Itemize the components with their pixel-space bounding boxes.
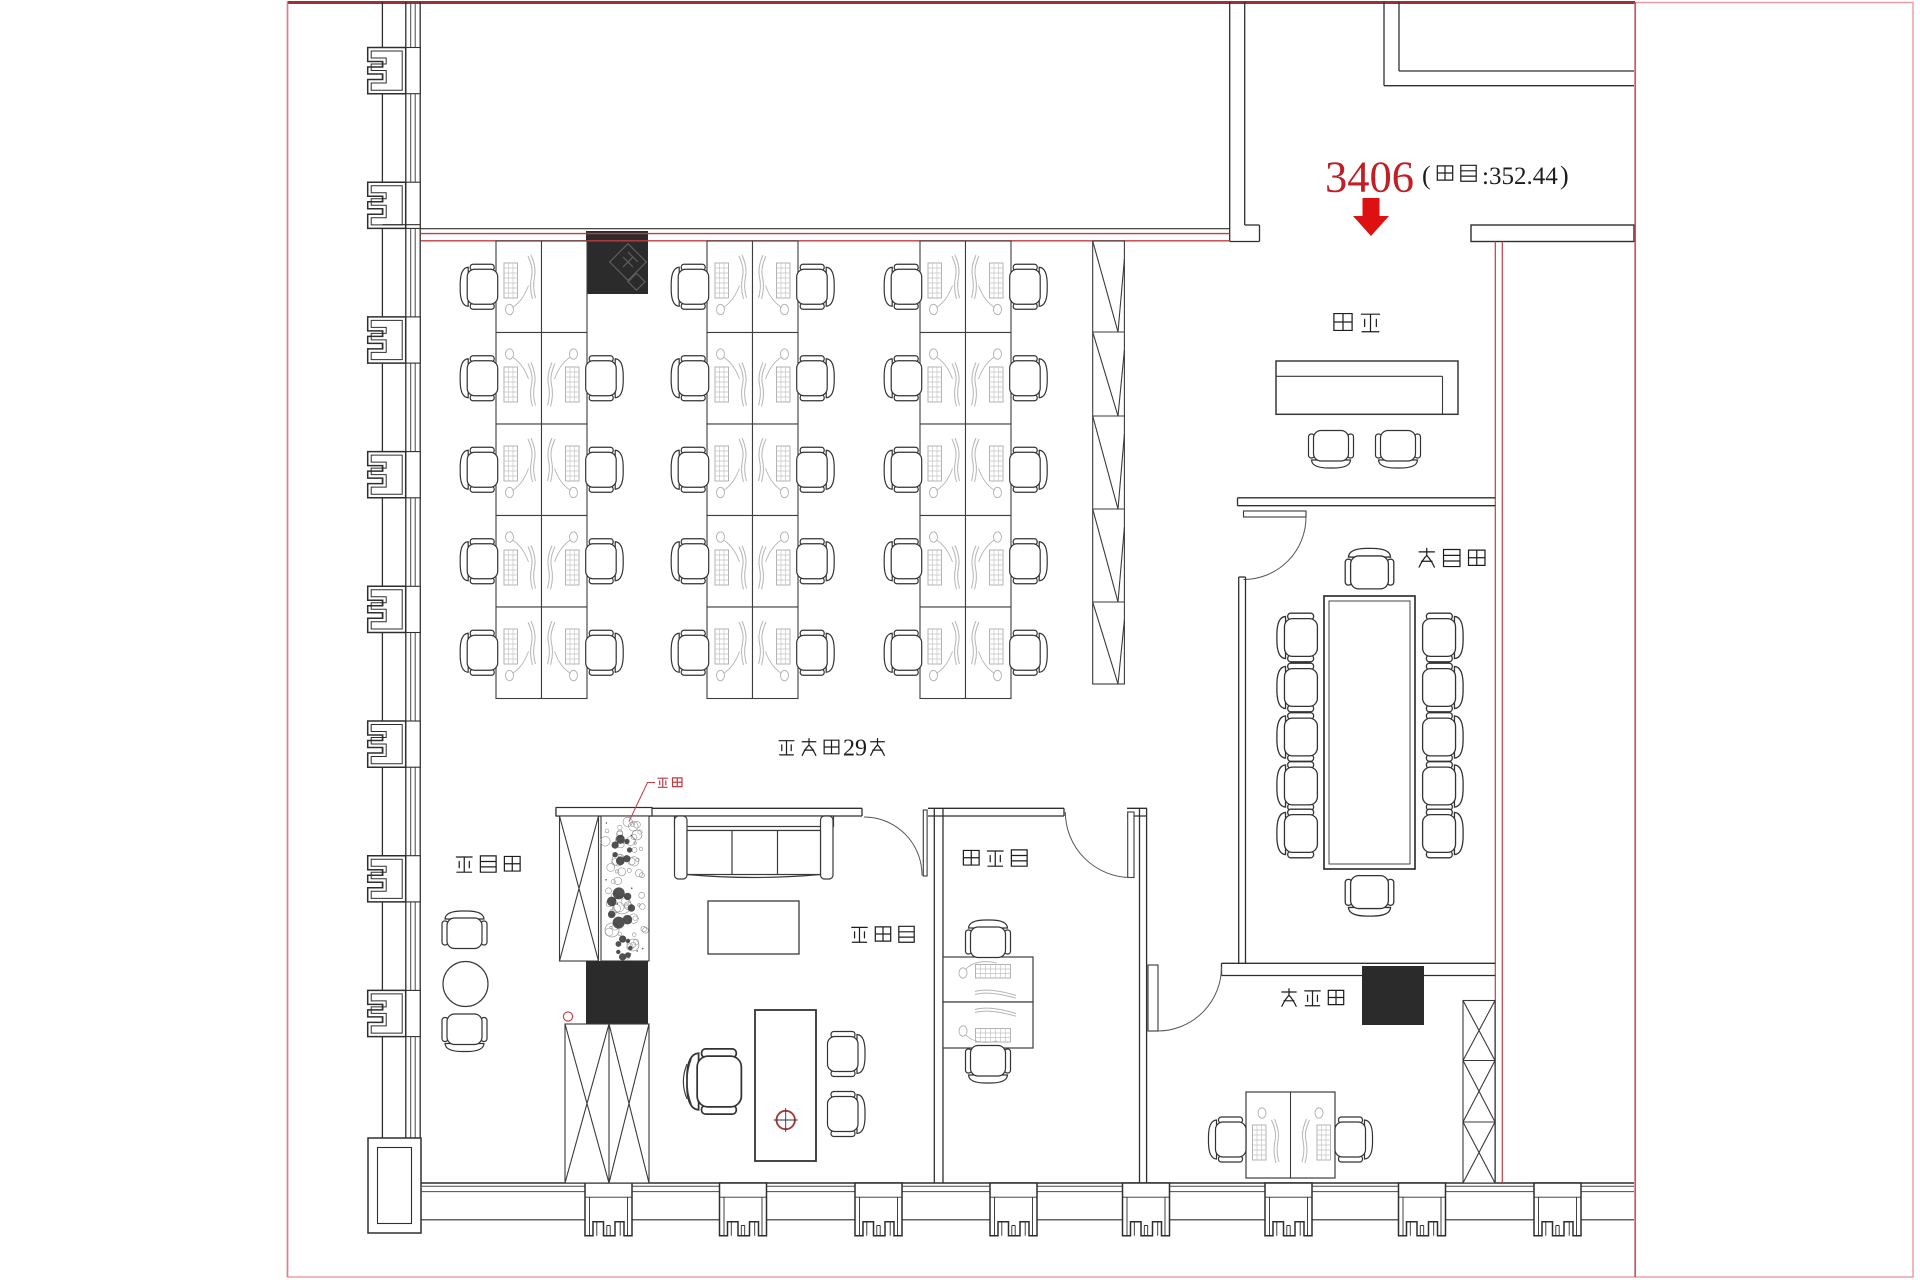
- svg-text::352.44: :352.44: [1482, 163, 1558, 190]
- svg-text:3406: 3406: [1325, 152, 1414, 202]
- svg-text:(: (: [1422, 161, 1431, 190]
- svg-text:29: 29: [843, 736, 867, 762]
- svg-text:): ): [1560, 161, 1569, 190]
